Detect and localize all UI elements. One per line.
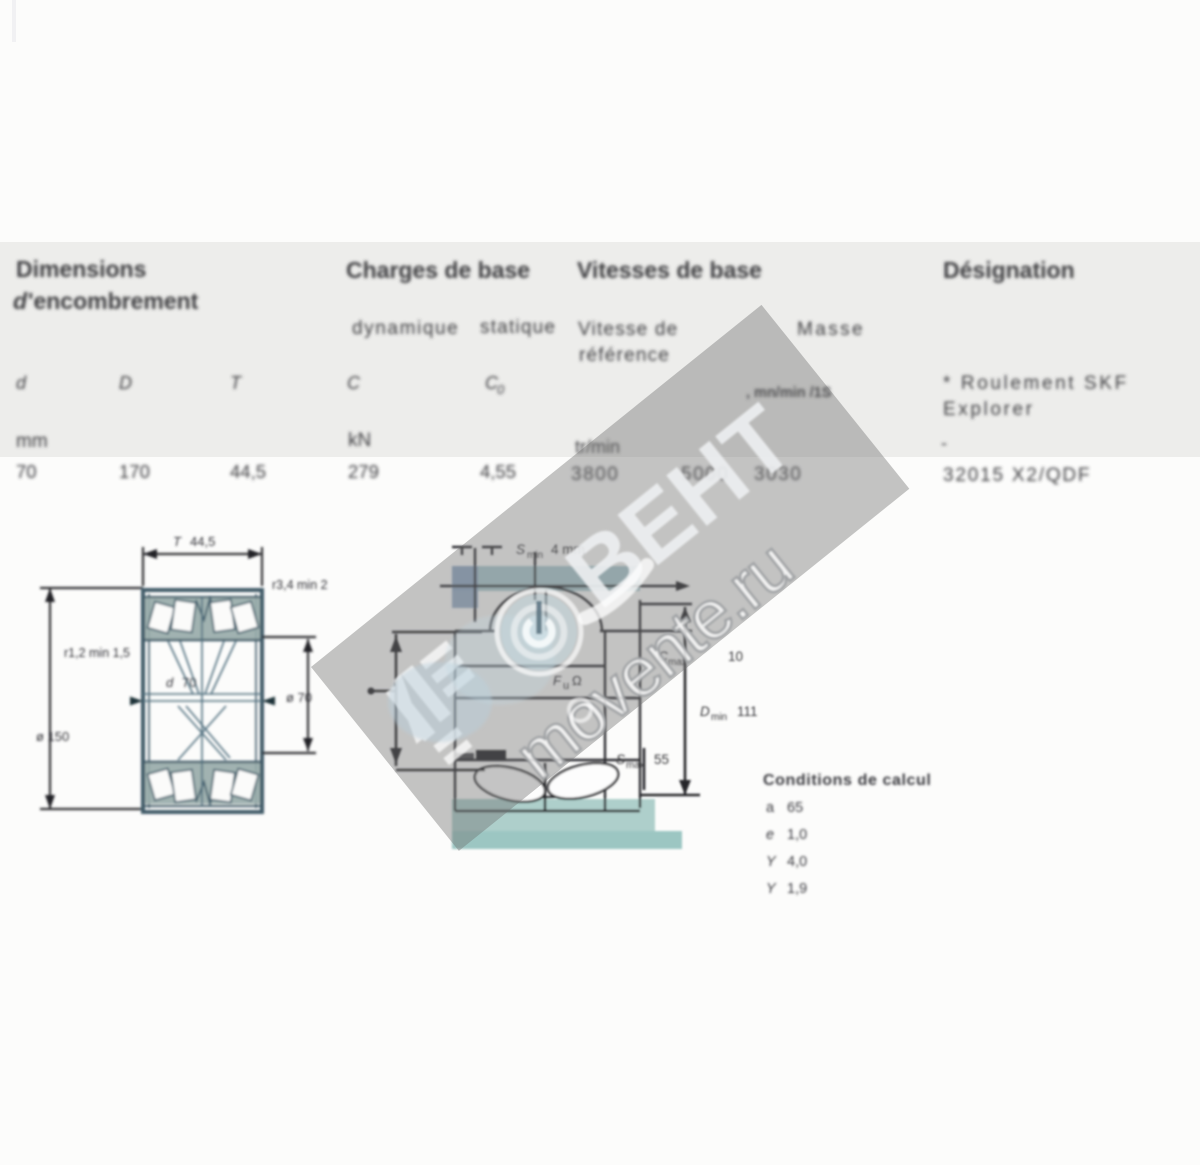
svg-text:Conditions de calcul: Conditions de calcul — [763, 772, 931, 789]
svg-text:d: d — [16, 373, 27, 393]
svg-text:65: 65 — [787, 800, 803, 816]
svg-text:44,5: 44,5 — [190, 534, 215, 549]
svg-text:-: - — [941, 433, 947, 453]
svg-text:32015 X2/QDF: 32015 X2/QDF — [943, 465, 1091, 486]
svg-text:D: D — [119, 373, 132, 393]
svg-text:Y: Y — [766, 854, 777, 870]
svg-text:Dimensions: Dimensions — [16, 256, 146, 282]
svg-text:S: S — [616, 752, 625, 767]
svg-text:279: 279 — [348, 461, 379, 482]
svg-text:Masse: Masse — [797, 319, 865, 340]
svg-text:4,55: 4,55 — [480, 461, 516, 482]
svg-text:a: a — [766, 800, 775, 816]
svg-text:1,9: 1,9 — [787, 881, 807, 897]
svg-text:Charges de base: Charges de base — [346, 257, 530, 283]
svg-text:min: min — [711, 712, 727, 723]
svg-text:statique: statique — [480, 317, 556, 338]
svg-text:T: T — [173, 534, 182, 549]
svg-text:ø 150: ø 150 — [36, 729, 69, 744]
svg-text:55: 55 — [654, 752, 669, 767]
svg-text:D: D — [700, 704, 710, 719]
svg-text:'encombrement: 'encombrement — [28, 288, 199, 314]
svg-text:111: 111 — [737, 704, 758, 719]
svg-text:dynamique: dynamique — [352, 318, 459, 339]
svg-text:r1,2 min 1,5: r1,2 min 1,5 — [64, 646, 130, 660]
svg-text:Vitesses de base: Vitesses de base — [577, 257, 762, 283]
svg-text:0: 0 — [497, 382, 505, 397]
svg-text:1,0: 1,0 — [787, 827, 807, 843]
svg-text:d: d — [13, 288, 28, 314]
svg-text:Y: Y — [766, 881, 777, 897]
svg-text:ø 70: ø 70 — [286, 690, 312, 705]
svg-text:70: 70 — [16, 461, 37, 482]
svg-text:max: max — [626, 760, 645, 771]
svg-text:Explorer: Explorer — [943, 399, 1035, 420]
svg-text:mm: mm — [16, 431, 48, 452]
svg-text:170: 170 — [119, 461, 150, 482]
svg-text:* Roulement SKF: * Roulement SKF — [943, 373, 1129, 394]
svg-text:70: 70 — [182, 675, 196, 690]
svg-text:Vitesse de: Vitesse de — [578, 319, 678, 340]
svg-text:10: 10 — [728, 649, 743, 664]
svg-text:e: e — [766, 827, 774, 843]
svg-text:C: C — [347, 373, 361, 393]
svg-text:kN: kN — [348, 430, 371, 451]
svg-text:4,0: 4,0 — [787, 854, 807, 870]
svg-text:44,5: 44,5 — [230, 461, 266, 482]
svg-text:d: d — [166, 675, 174, 690]
svg-text:Désignation: Désignation — [943, 257, 1075, 283]
svg-text:référence: référence — [579, 345, 670, 366]
svg-text:r3,4 min 2: r3,4 min 2 — [272, 578, 328, 592]
